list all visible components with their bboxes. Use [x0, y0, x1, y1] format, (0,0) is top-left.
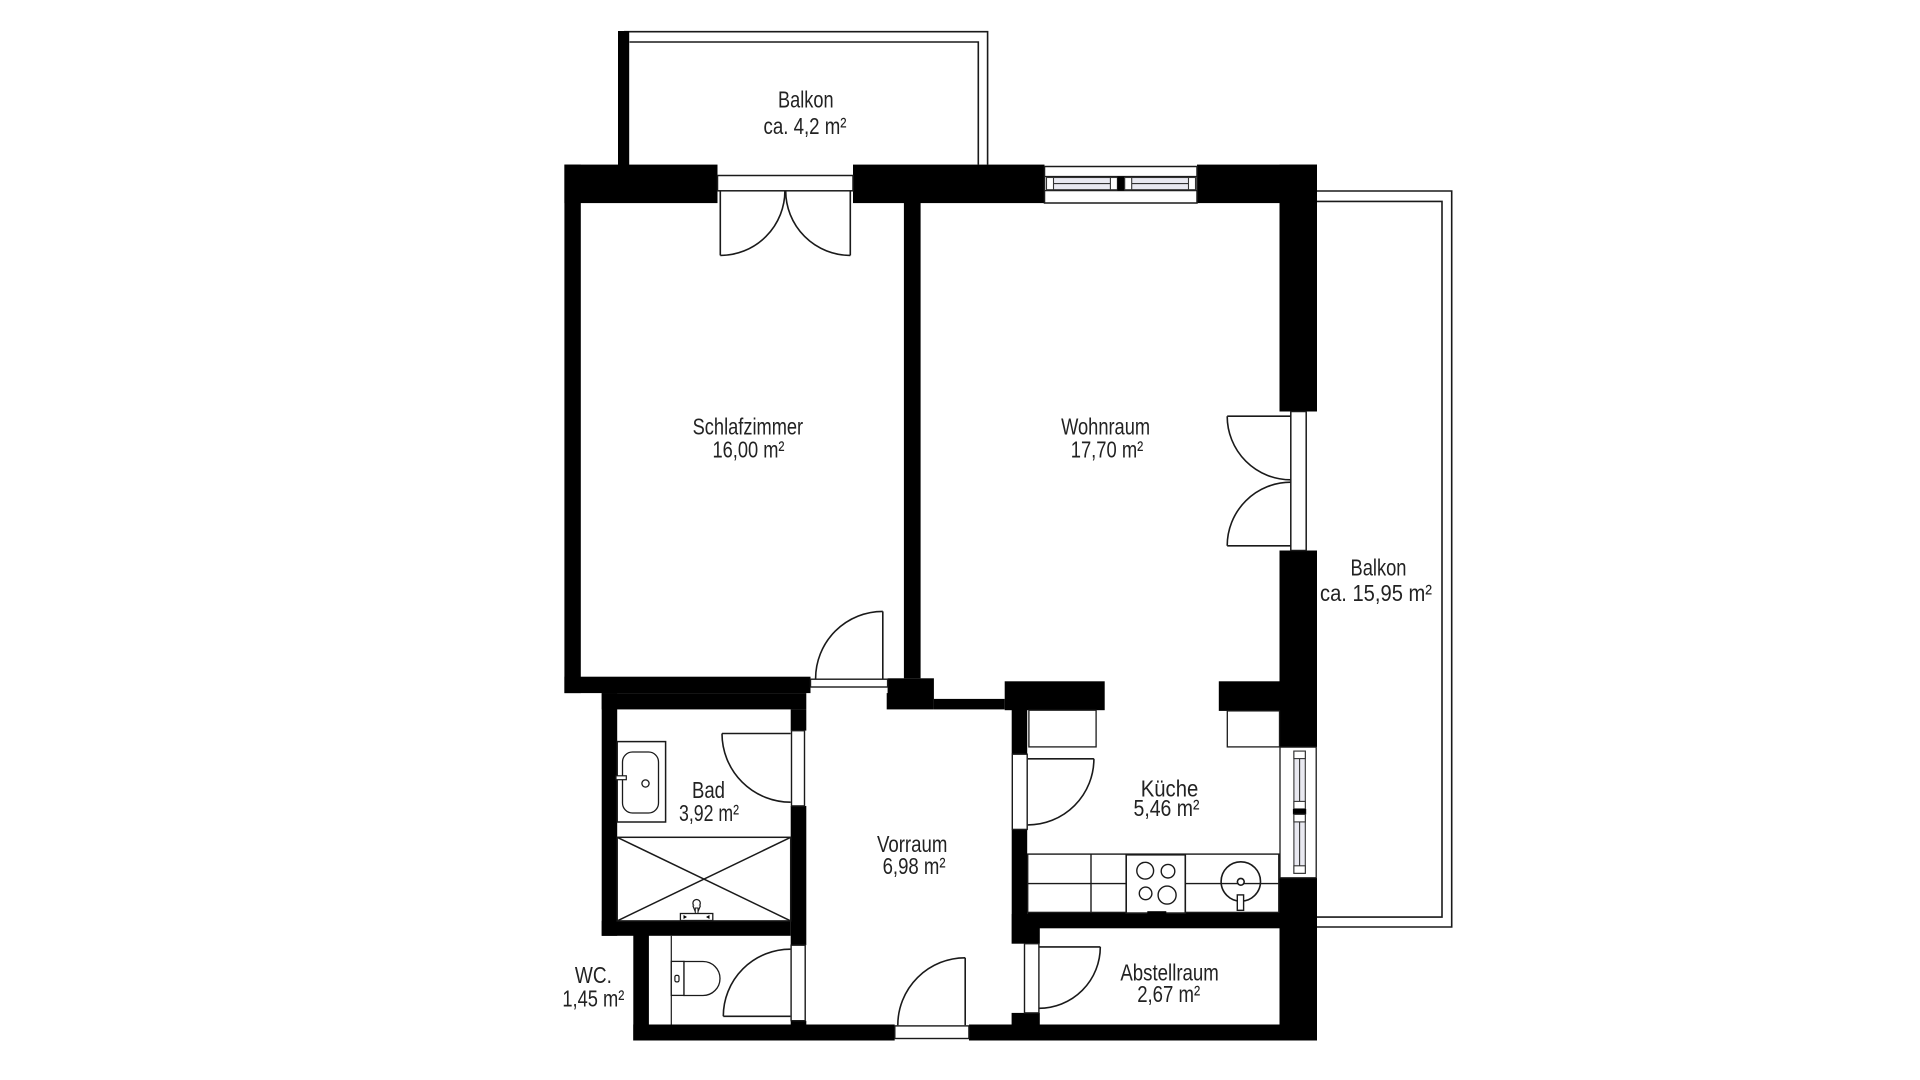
- svg-text:3,92 m²: 3,92 m²: [679, 800, 739, 826]
- svg-text:ca. 4,2 m²: ca. 4,2 m²: [764, 113, 847, 139]
- svg-text:17,70 m²: 17,70 m²: [1071, 437, 1144, 463]
- svg-text:5,46 m²: 5,46 m²: [1134, 795, 1200, 821]
- svg-text:Balkon: Balkon: [1351, 555, 1407, 581]
- svg-text:2,67 m²: 2,67 m²: [1137, 981, 1200, 1007]
- svg-text:1,45 m²: 1,45 m²: [562, 986, 624, 1012]
- svg-text:ca. 15,95 m²: ca. 15,95 m²: [1320, 580, 1432, 606]
- svg-text:6,98 m²: 6,98 m²: [883, 853, 946, 879]
- svg-text:WC.: WC.: [575, 962, 612, 988]
- svg-text:Balkon: Balkon: [778, 87, 834, 113]
- svg-text:16,00 m²: 16,00 m²: [713, 437, 785, 463]
